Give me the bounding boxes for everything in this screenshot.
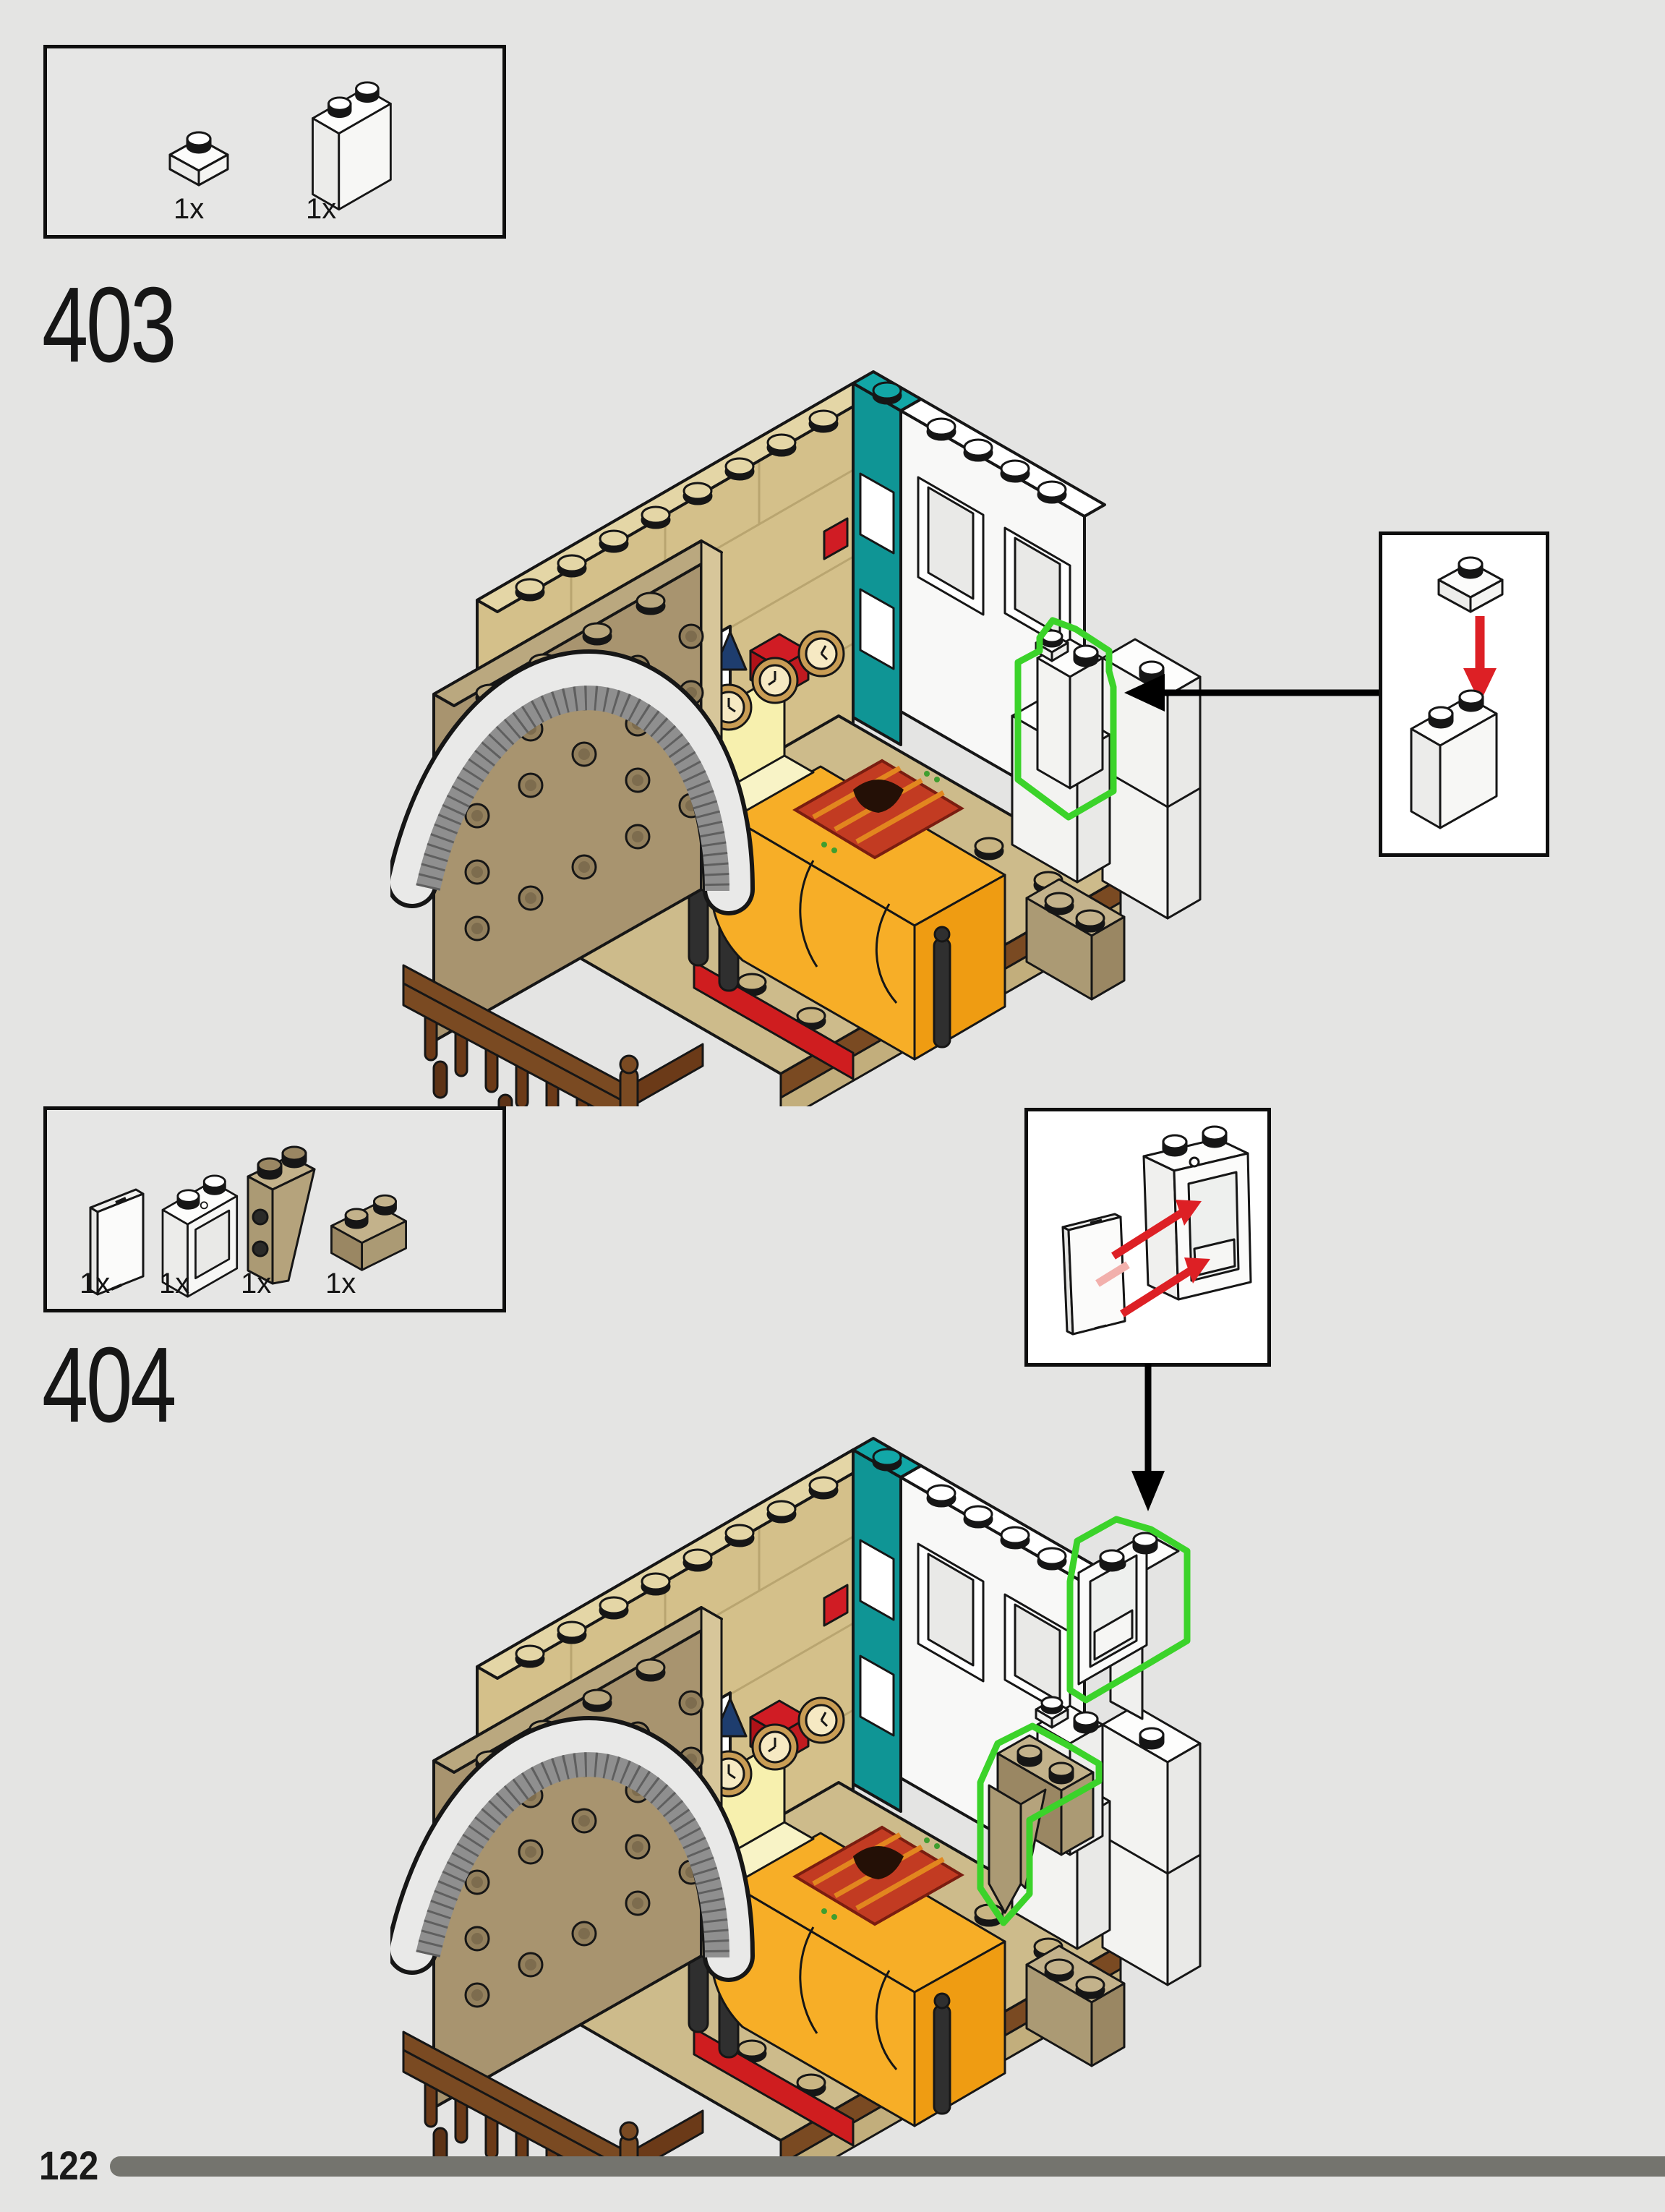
part-count-label: 1x <box>159 1268 189 1300</box>
callout-box-403 <box>1379 531 1549 857</box>
part-count-label: 1x <box>306 193 336 226</box>
step-number-404: 404 <box>42 1336 174 1435</box>
parts-box-403: 1x 1x <box>43 45 506 239</box>
part-count-label: 1x <box>325 1268 356 1300</box>
part-count-label: 1x <box>80 1268 110 1300</box>
part-brick-1x2-dark-tan-icon <box>314 1190 423 1280</box>
pointer-arrow-404 <box>1124 1364 1175 1516</box>
step-number-403: 403 <box>42 276 174 375</box>
parts-box-404: 1x 1x 1x 1x <box>43 1106 506 1312</box>
part-count-label: 1x <box>241 1268 271 1300</box>
callout-diagram-403 <box>1382 535 1546 853</box>
part-count-label: 1x <box>174 193 204 226</box>
assembly-illustration-403 <box>390 311 1244 1106</box>
callout-plate-1x1-icon <box>1439 558 1502 612</box>
callout-brick-1x2x2-icon <box>1411 691 1497 828</box>
part-plate-1x1-white-icon <box>155 117 242 189</box>
pointer-arrow-403 <box>1117 665 1384 720</box>
callout-diagram-404 <box>1028 1111 1267 1363</box>
highlighted-window-404 <box>1070 1519 1187 1719</box>
manual-page: { "page": { "number": "122" }, "colors":… <box>0 0 1665 2212</box>
assembly-illustration-404 <box>390 1378 1244 2173</box>
callout-box-404 <box>1024 1108 1271 1367</box>
progress-bar <box>110 2156 1665 2177</box>
page-number: 122 <box>39 2142 98 2189</box>
